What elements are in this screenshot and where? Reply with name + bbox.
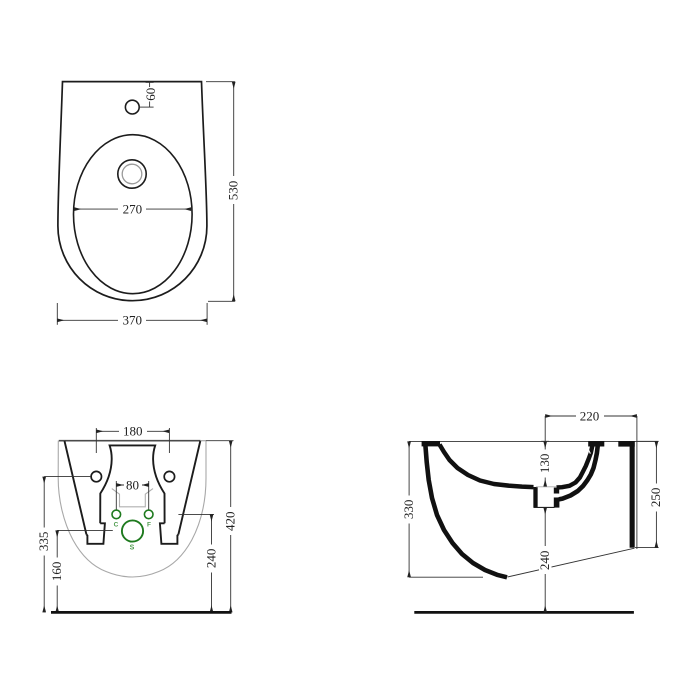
svg-text:330: 330 xyxy=(401,500,416,520)
svg-text:335: 335 xyxy=(36,532,51,552)
svg-text:C: C xyxy=(114,522,119,529)
svg-text:S: S xyxy=(130,545,135,552)
svg-text:80: 80 xyxy=(126,477,139,492)
svg-text:530: 530 xyxy=(226,181,241,201)
svg-text:240: 240 xyxy=(537,551,552,571)
svg-text:270: 270 xyxy=(123,202,143,217)
svg-text:130: 130 xyxy=(537,454,552,474)
svg-text:160: 160 xyxy=(49,562,64,582)
svg-text:F: F xyxy=(147,522,151,529)
svg-text:60: 60 xyxy=(143,88,158,101)
svg-text:220: 220 xyxy=(580,408,600,423)
svg-text:370: 370 xyxy=(122,313,142,328)
svg-text:250: 250 xyxy=(648,488,663,508)
svg-text:420: 420 xyxy=(223,512,238,532)
svg-text:240: 240 xyxy=(203,549,218,569)
svg-text:180: 180 xyxy=(123,424,143,439)
